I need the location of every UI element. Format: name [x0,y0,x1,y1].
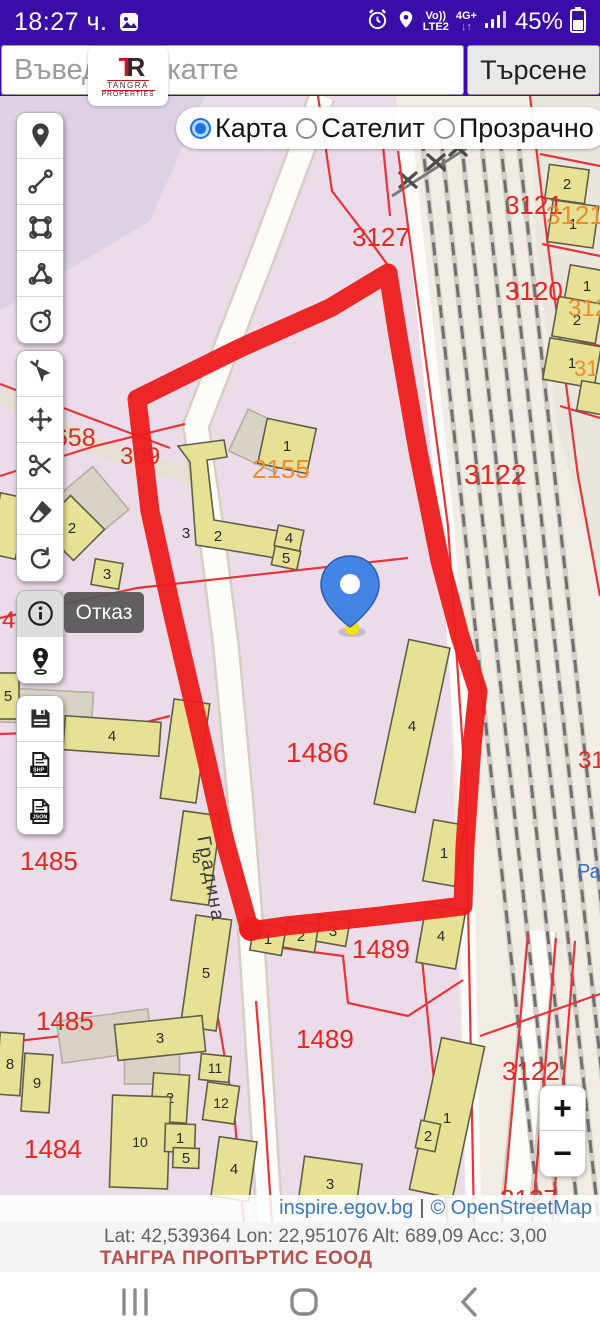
measure-polygon-icon [26,213,55,242]
tool-save-floppy-button[interactable] [17,696,63,742]
inspire-link[interactable]: inspire.egov.bg [279,1197,413,1220]
parcel-label: 31 [578,747,600,774]
save-floppy-icon [26,704,55,733]
building-number: 5 [4,688,12,705]
tool-select-cursor-button[interactable] [17,351,63,397]
parcel-label: 3121 [546,200,600,230]
parcel-label: 1489 [352,934,410,964]
building-number: 3 [103,566,111,583]
cancel-button[interactable]: Отказ [64,592,144,633]
map-type-option-1[interactable]: Карта [190,113,287,144]
building-number: 2 [563,176,571,193]
building [577,381,600,416]
map-attribution: inspire.egov.bg | © OpenStreetMap [0,1195,600,1222]
export-shp-icon: SHP [26,750,55,779]
parcel-label: 3127 [352,222,410,252]
tool-pan-move-button[interactable] [17,397,63,443]
home-button[interactable] [289,1287,319,1317]
parcel-label: 1485 [36,1006,94,1036]
building-number: 8 [6,1056,14,1073]
parcel-label: 3122 [502,1056,560,1086]
measure-circle-icon [26,306,55,335]
tangra-logo: TR TANGRA PROPERTIES [88,46,168,106]
radio-icon[interactable] [296,118,317,139]
building-number: 1 [583,278,591,295]
building-number: 4 [285,530,293,547]
tool-export-shp-button[interactable]: SHP [17,742,63,788]
highlight-outline-blob [239,917,263,941]
pan-move-icon [26,405,55,434]
phone-screen: 18:27 ч. Vo))LTE2 4G+↓↑ 45% [0,0,600,1332]
map-canvas[interactable]: 2112112345235455411234123389112101215431… [0,96,600,1222]
location-on-icon [396,8,416,36]
cut-scissors-icon [26,451,55,480]
toolbar-group-4: SHPJSON [16,695,64,835]
tool-measure-line-button[interactable] [17,159,63,205]
building-number: 5 [202,965,210,982]
toolbar-group-3 [16,590,64,684]
volte-indicator: Vo))LTE2 [423,11,449,33]
building-number: 11 [208,1060,223,1076]
parcel-label: 1484 [24,1134,82,1164]
battery-percent: 45% [515,8,563,36]
toolbar-group-1 [16,112,64,344]
parcel-label: 1489 [296,1024,354,1054]
building-number: 9 [33,1075,41,1092]
zoom-out-button[interactable]: − [540,1131,585,1176]
osm-link[interactable]: © OpenStreetMap [431,1197,592,1220]
building-number: 5 [282,550,290,567]
radio-icon[interactable] [434,118,455,139]
parcel-label: Ра [577,861,600,883]
svg-text:JSON: JSON [32,814,47,820]
select-cursor-icon [26,359,55,388]
building-number: 10 [132,1134,148,1150]
building-number: 12 [213,1095,229,1111]
parcel-label: 3120 [505,276,563,306]
building-number: 5 [182,1150,190,1167]
parcel-label: 2155 [252,454,310,484]
zoom-controls: + − [539,1085,586,1177]
building-number: 1 [283,438,291,455]
network-indicator: 4G+↓↑ [456,11,477,33]
marker-pin-icon [26,121,55,150]
gps-coordinates: Lat: 42,539364 Lon: 22,951076 Alt: 689,0… [0,1226,600,1248]
clock-time: 18:27 ч. [14,8,107,37]
parcel-label: 31 [574,356,598,381]
tool-marker-pin-button[interactable] [17,113,63,159]
tool-measure-circle-button[interactable] [17,297,63,343]
building-number: 4 [408,718,416,735]
tool-person-locate-button[interactable] [17,637,63,683]
radio-icon[interactable] [190,118,211,139]
tool-cut-scissors-button[interactable] [17,443,63,489]
person-locate-icon [26,646,55,675]
search-button[interactable]: Търсене [467,45,600,95]
tool-export-json-button[interactable]: JSON [17,788,63,834]
building-number: 4 [108,728,116,745]
parcel-label: 3120 [568,295,600,322]
building-number: 1 [176,1130,184,1147]
ekatte-search-input[interactable] [1,45,464,95]
rotate-undo-icon [26,544,55,573]
building-number: 2 [68,520,76,537]
map-type-option-2[interactable]: Сателит [296,113,425,144]
tool-rotate-undo-button[interactable] [17,535,63,581]
alarm-icon [366,8,389,36]
export-json-icon: JSON [26,797,55,826]
pin-center-dot [340,574,360,594]
measure-line-icon [26,167,55,196]
building-number: 3 [156,1030,164,1047]
building-number: 3 [326,1176,334,1193]
zoom-in-button[interactable]: + [540,1086,585,1131]
back-button[interactable] [458,1286,480,1318]
tool-measure-angle-button[interactable] [17,251,63,297]
building-number: 2 [424,1128,432,1145]
status-bar: 18:27 ч. Vo))LTE2 4G+↓↑ 45% [0,0,600,44]
building-number: 2 [214,528,222,545]
svg-text:SHP: SHP [32,767,44,773]
toolbar-group-2 [16,350,64,582]
parcel-label: 3122 [464,459,526,490]
map-type-option-3[interactable]: Прозрачно [434,113,594,144]
search-row: Търсене TR TANGRA PROPERTIES [0,44,600,96]
screenshot-icon [117,10,141,34]
recents-button[interactable] [120,1288,150,1316]
gps-footer: Lat: 42,539364 Lon: 22,951076 Alt: 689,0… [0,1222,600,1272]
parcel-label: 1486 [286,737,348,768]
company-name: ТАНГРА ПРОПЪРТИС ЕООД [0,1248,600,1270]
tool-info-button[interactable] [17,591,63,637]
building-number: 3 [182,525,190,542]
building-number: 1 [443,1110,451,1127]
building-number: 4 [230,1161,238,1178]
map-viewport[interactable]: 2112112345235455411234123389112101215431… [0,96,600,1222]
signal-icon [484,9,508,36]
battery-icon [570,7,586,38]
tool-measure-polygon-button[interactable] [17,205,63,251]
tool-eraser-button[interactable] [17,489,63,535]
parcel-label: 1485 [20,846,78,876]
info-icon [26,599,55,628]
building-number: 1 [440,845,448,862]
building-number: 4 [437,928,445,945]
eraser-icon [26,497,55,526]
measure-angle-icon [26,259,55,288]
android-navbar [0,1272,600,1332]
map-type-selector: КартаСателитПрозрачно [176,107,600,149]
